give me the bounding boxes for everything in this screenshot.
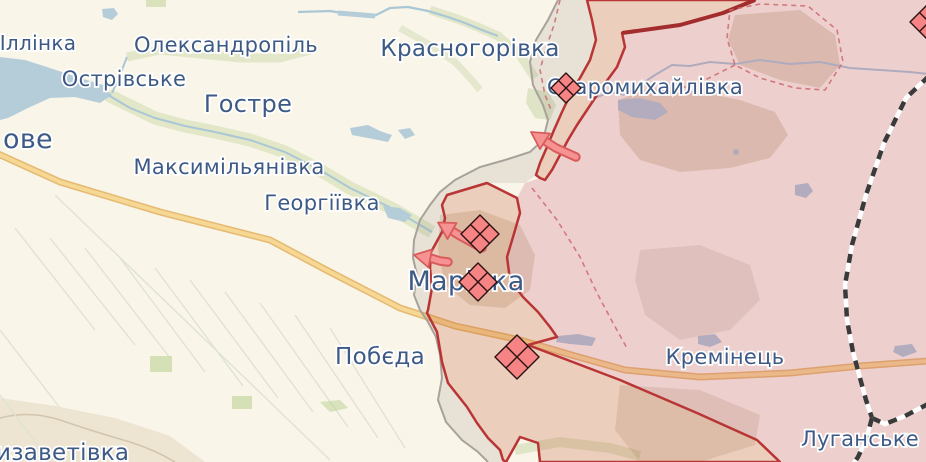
town-label-pobieda: Побєда bbox=[335, 344, 425, 370]
town-label-maksymilianivka: Максимільянівка bbox=[134, 155, 325, 179]
town-label-illinka: Іллінка bbox=[0, 31, 76, 55]
town-label-oleksandropil: Олександропіль bbox=[134, 33, 318, 57]
town-label-hostre: Гостре bbox=[204, 90, 292, 118]
town-label-krasnohorivka: Красногорівка bbox=[380, 36, 559, 62]
town-label-heorhiivka: Георгіївка bbox=[264, 191, 380, 215]
town-label-yelyzavetivka-partial: изаветівка bbox=[0, 440, 129, 462]
town-label-ostrivske: Острівське bbox=[62, 67, 186, 91]
town-label-ove-partial: ове bbox=[3, 124, 53, 155]
town-label-luhanske: Луганське bbox=[801, 427, 919, 451]
war-map-canvas[interactable]: Іллінка Олександропіль Острівське Гостре… bbox=[0, 0, 926, 462]
town-label-kreminets: Кремінець bbox=[666, 345, 785, 369]
